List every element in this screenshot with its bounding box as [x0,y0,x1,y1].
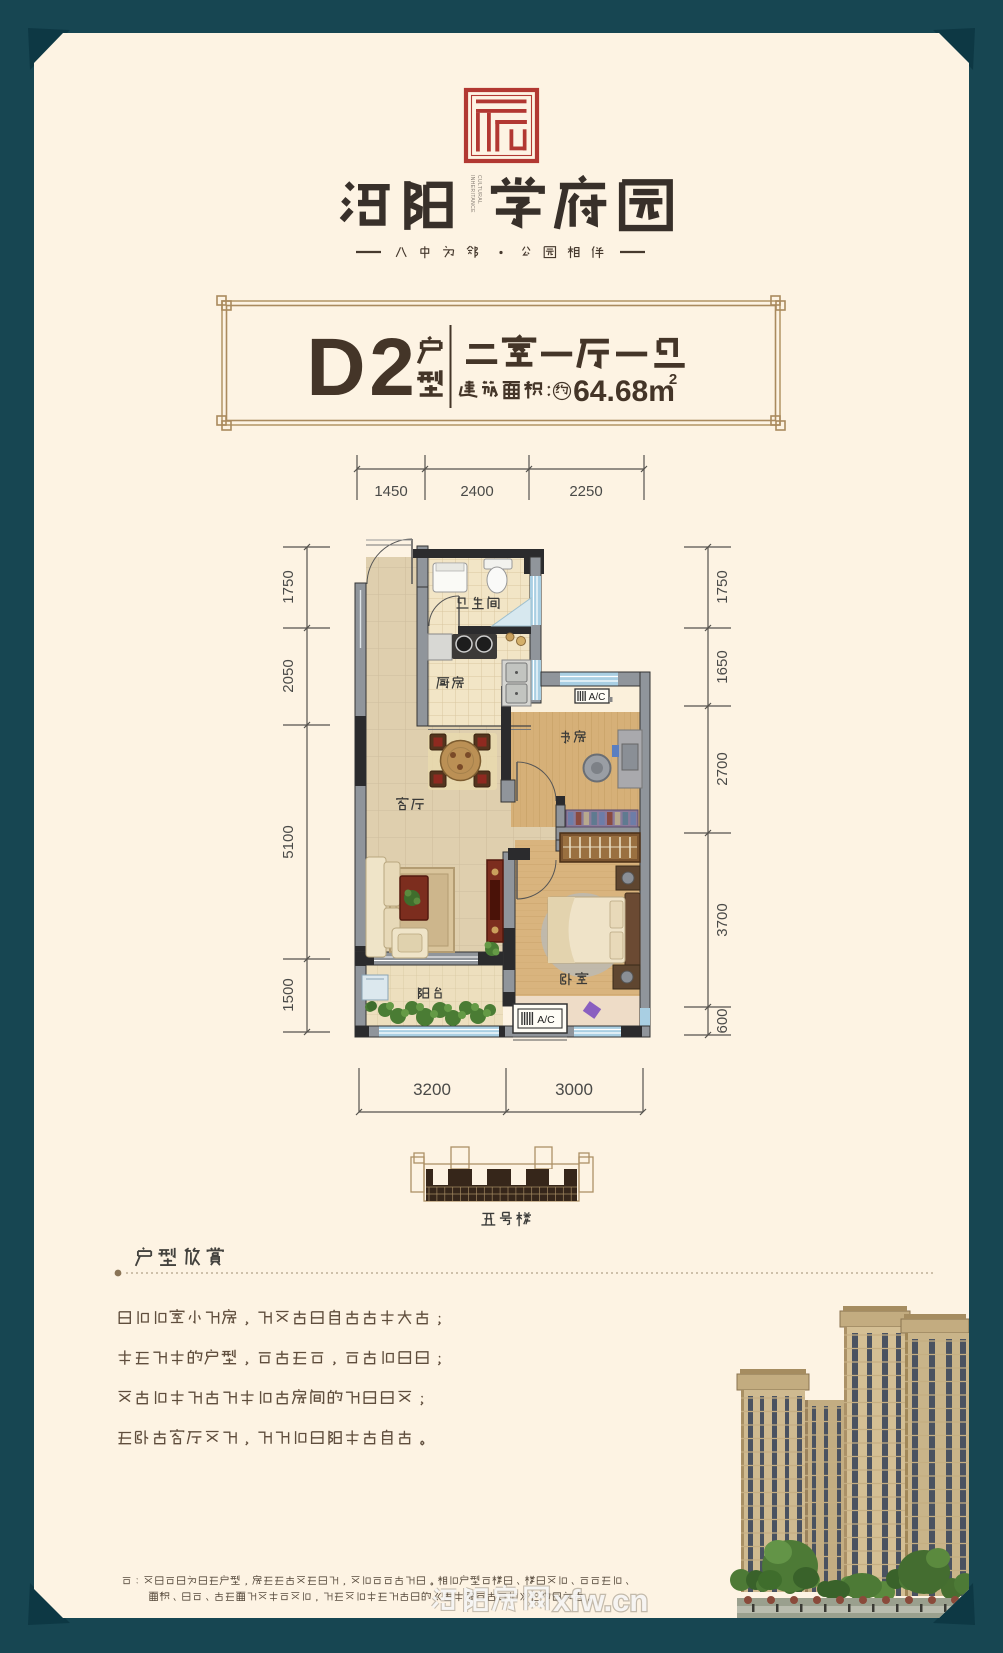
svg-text:600: 600 [714,1008,731,1033]
svg-text:2: 2 [369,322,415,413]
svg-text:3200: 3200 [413,1080,451,1099]
svg-text:1750: 1750 [714,570,731,603]
svg-text:5100: 5100 [280,825,297,858]
svg-text:2: 2 [669,371,677,388]
svg-text:D: D [306,322,365,413]
svg-text:1650: 1650 [714,650,731,683]
svg-text:xfw.cn: xfw.cn [553,1583,648,1618]
svg-text:3000: 3000 [555,1080,593,1099]
svg-text:2700: 2700 [714,752,731,785]
svg-text:64.68m: 64.68m [573,375,675,408]
svg-text:A/C: A/C [537,1014,555,1026]
svg-text:1750: 1750 [280,570,297,603]
svg-text:1450: 1450 [374,483,407,500]
svg-text:2250: 2250 [569,483,602,500]
svg-text:A/C: A/C [589,692,606,703]
svg-text:INHERITANCE: INHERITANCE [469,175,475,213]
svg-text:3700: 3700 [714,903,731,936]
svg-text:CULTURAL: CULTURAL [476,175,482,204]
svg-text:2050: 2050 [280,659,297,692]
svg-text:2400: 2400 [460,483,493,500]
svg-text:1500: 1500 [280,978,297,1011]
